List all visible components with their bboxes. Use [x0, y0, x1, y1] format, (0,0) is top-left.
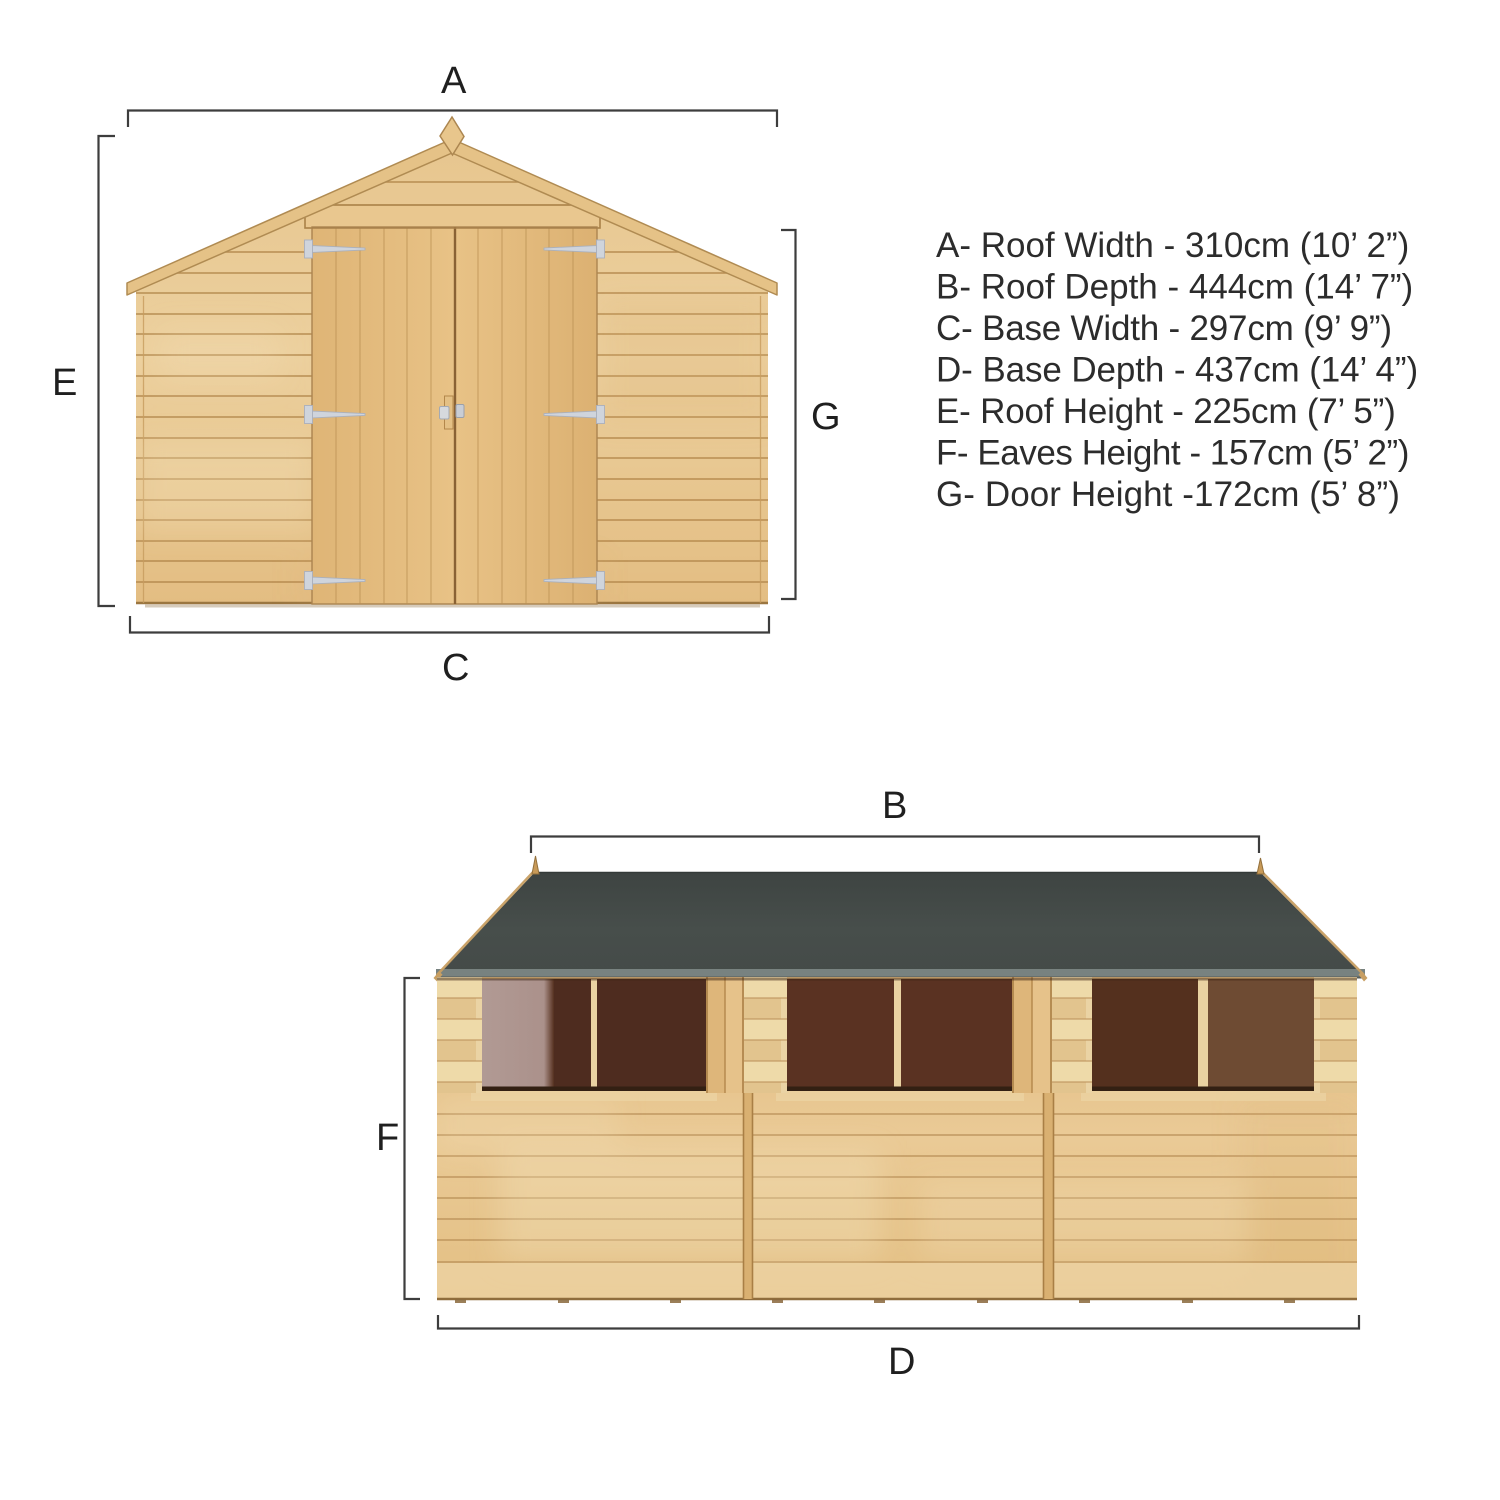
svg-text:D: D: [888, 1341, 915, 1383]
svg-text:B: B: [882, 785, 907, 827]
svg-text:G: G: [811, 396, 841, 438]
svg-text:G- Door Height -172cm (5’ 8”): G- Door Height -172cm (5’ 8”): [936, 475, 1400, 514]
svg-text:E: E: [52, 362, 77, 404]
svg-text:C- Base Width - 297cm (9’ 9”): C- Base Width - 297cm (9’ 9”): [936, 309, 1392, 348]
svg-text:D- Base Depth - 437cm (14’ 4”): D- Base Depth - 437cm (14’ 4”): [936, 351, 1418, 390]
svg-text:A- Roof Width - 310cm (10’ 2”): A- Roof Width - 310cm (10’ 2”): [936, 226, 1409, 265]
svg-text:F: F: [376, 1117, 399, 1159]
svg-text:C: C: [442, 647, 469, 689]
svg-text:A: A: [441, 60, 467, 102]
svg-text:F- Eaves Height - 157cm (5’ 2”: F- Eaves Height - 157cm (5’ 2”): [936, 434, 1409, 473]
svg-text:B- Roof Depth - 444cm (14’ 7”): B- Roof Depth - 444cm (14’ 7”): [936, 268, 1413, 307]
svg-text:E- Roof Height - 225cm (7’ 5”): E- Roof Height - 225cm (7’ 5”): [936, 392, 1396, 431]
